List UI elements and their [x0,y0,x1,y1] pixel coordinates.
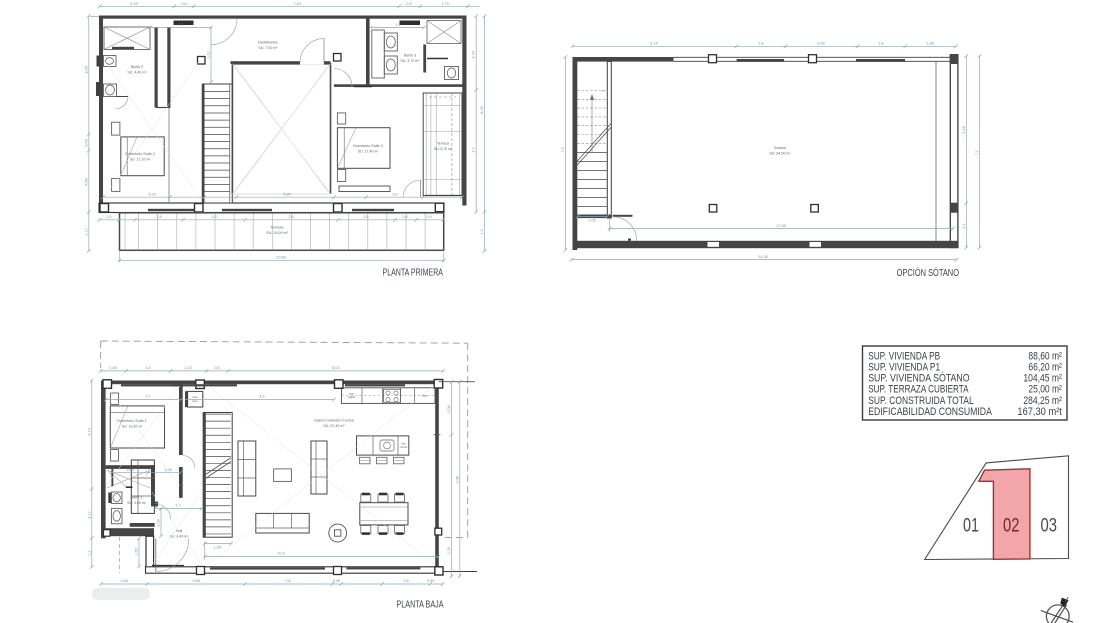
svg-text:7,43: 7,43 [293,2,300,6]
svg-text:3,6: 3,6 [363,215,368,219]
svg-text:Baño 3: Baño 3 [404,53,416,58]
svg-text:isla: isla [402,442,406,446]
svg-text:SU: 15,00 m²: SU: 15,00 m² [266,231,288,235]
svg-text:PLANTA BAJA: PLANTA BAJA [397,599,444,610]
svg-text:1,5: 1,5 [106,215,111,219]
svg-text:2,8: 2,8 [288,215,293,219]
svg-text:SU: 57,40 m²: SU: 57,40 m² [323,424,345,428]
svg-text:167,30 m²t: 167,30 m²t [1017,406,1062,418]
svg-text:17,65: 17,65 [776,224,786,228]
svg-text:SUP. VIVIENDA SÓTANO: SUP. VIVIENDA SÓTANO [868,372,970,385]
svg-text:vajillas: vajillas [348,395,356,399]
svg-text:3,06: 3,06 [84,66,88,73]
svg-text:1,88: 1,88 [126,468,133,472]
svg-text:0,66: 0,66 [109,366,116,370]
svg-text:1,65: 1,65 [135,548,139,555]
svg-text:SU: 8,70 m²: SU: 8,70 m² [434,147,453,151]
svg-text:25,00 m²: 25,00 m² [1028,384,1062,396]
svg-text:2,03: 2,03 [157,519,161,526]
svg-text:3,68: 3,68 [192,579,199,583]
svg-text:1,3: 1,3 [480,229,484,234]
svg-text:17: 17 [601,89,605,93]
svg-text:1,8: 1,8 [878,42,883,46]
svg-text:Salón-Comedor-Cocina: Salón-Comedor-Cocina [314,419,355,423]
svg-text:1,5: 1,5 [396,23,401,27]
svg-text:4,85: 4,85 [283,192,290,196]
svg-text:3,76: 3,76 [472,51,476,58]
svg-text:Hall: Hall [176,529,183,533]
svg-text:3,17: 3,17 [87,511,91,518]
svg-text:1,85: 1,85 [926,42,933,46]
svg-text:8,06: 8,06 [480,106,484,113]
svg-text:7,1: 7,1 [975,150,979,155]
svg-text:01: 01 [963,515,979,536]
svg-text:0,6: 0,6 [402,215,407,219]
svg-text:3,2: 3,2 [392,192,397,196]
svg-text:1,8: 1,8 [145,366,150,370]
svg-text:0,93: 0,93 [427,579,434,583]
svg-text:SU: 7,00 m²: SU: 7,00 m² [258,46,278,50]
svg-text:2,8: 2,8 [403,579,408,583]
svg-text:10,66: 10,66 [276,256,286,260]
svg-text:1,05: 1,05 [214,546,221,550]
svg-text:4,5: 4,5 [259,395,264,399]
svg-text:1,7: 1,7 [175,504,180,508]
svg-text:SU: 10,30 m²: SU: 10,30 m² [122,425,143,429]
svg-text:1,78: 1,78 [447,547,451,554]
svg-text:3,7: 3,7 [472,147,476,152]
svg-text:SUP. VIVIENDA P1: SUP. VIVIENDA P1 [868,361,940,373]
svg-text:0,66: 0,66 [817,42,824,46]
svg-text:4,56: 4,56 [84,178,88,185]
svg-text:1,8: 1,8 [156,215,161,219]
svg-text:PLANTA PRIMERA: PLANTA PRIMERA [383,267,444,278]
svg-text:1,05: 1,05 [588,219,595,223]
svg-text:0,99: 0,99 [130,2,137,6]
svg-text:2,08: 2,08 [447,405,451,412]
svg-text:02: 02 [1003,515,1020,536]
svg-text:Sótano: Sótano [774,145,786,150]
svg-text:EDIFICABILIDAD CONSUMIDA: EDIFICABILIDAD CONSUMIDA [868,406,992,418]
svg-text:4,46: 4,46 [962,126,966,133]
svg-text:cocina: cocina [400,445,408,449]
svg-text:2,8: 2,8 [285,579,290,583]
svg-text:lava: lava [349,392,354,396]
svg-text:3,12: 3,12 [207,52,211,59]
svg-text:66,20 m²: 66,20 m² [1028,361,1062,373]
svg-text:SU: 4,40 m²: SU: 4,40 m² [127,71,147,75]
svg-text:Baño 1: Baño 1 [130,496,142,500]
svg-text:03: 03 [1040,515,1057,536]
svg-text:10,6: 10,6 [277,552,284,556]
svg-text:0,46: 0,46 [84,139,88,146]
svg-text:Terraza: Terraza [271,225,285,230]
svg-text:1,17: 1,17 [84,228,88,235]
svg-text:1,75: 1,75 [441,2,448,6]
svg-text:1,8: 1,8 [758,42,763,46]
svg-text:3,00: 3,00 [148,192,155,196]
svg-text:6,16: 6,16 [650,42,657,46]
svg-text:1,23: 1,23 [184,366,191,370]
svg-text:OPCIÓN SÓTANO: OPCIÓN SÓTANO [897,268,960,279]
svg-text:3,3: 3,3 [211,215,216,219]
svg-text:SU: 3,50 m²: SU: 3,50 m² [127,501,147,505]
svg-text:Terraza: Terraza [437,142,449,146]
svg-text:3,7: 3,7 [145,395,150,399]
svg-text:0,8: 0,8 [181,2,186,6]
svg-text:7,5: 7,5 [561,147,565,152]
svg-text:1,1: 1,1 [179,23,184,27]
svg-text:17: 17 [225,411,229,415]
svg-text:SU: 17,40 m²: SU: 17,40 m² [358,150,379,154]
svg-text:0,9: 0,9 [406,2,411,6]
svg-text:SU: 84,50 m²: SU: 84,50 m² [769,152,791,156]
svg-text:SU: 3,70 m²: SU: 3,70 m² [400,59,420,63]
svg-text:2,1: 2,1 [962,223,966,228]
svg-text:1,08: 1,08 [164,468,171,472]
svg-text:Distribuidor: Distribuidor [258,40,278,45]
svg-text:1,68: 1,68 [120,579,127,583]
svg-text:14,35: 14,35 [758,255,768,259]
svg-text:Baño 2: Baño 2 [131,64,143,69]
svg-text:1,1: 1,1 [87,550,91,555]
svg-text:Dormitorio Suite 2: Dormitorio Suite 2 [125,152,155,156]
svg-text:frigo: frigo [422,394,428,398]
svg-text:0,8: 0,8 [214,366,219,370]
svg-text:Dormitorio Suite 3: Dormitorio Suite 3 [353,144,383,148]
svg-text:lava: lava [193,395,198,399]
svg-text:7,08: 7,08 [455,476,459,483]
svg-text:SUP. TERRAZA CUBIERTA: SUP. TERRAZA CUBIERTA [868,384,969,396]
svg-text:SU: 17,10 m²: SU: 17,10 m² [130,158,151,162]
svg-text:4,14: 4,14 [87,428,91,435]
svg-text:8,01: 8,01 [332,366,339,370]
svg-text:0,95: 0,95 [333,579,340,583]
svg-text:0,9: 0,9 [426,215,431,219]
